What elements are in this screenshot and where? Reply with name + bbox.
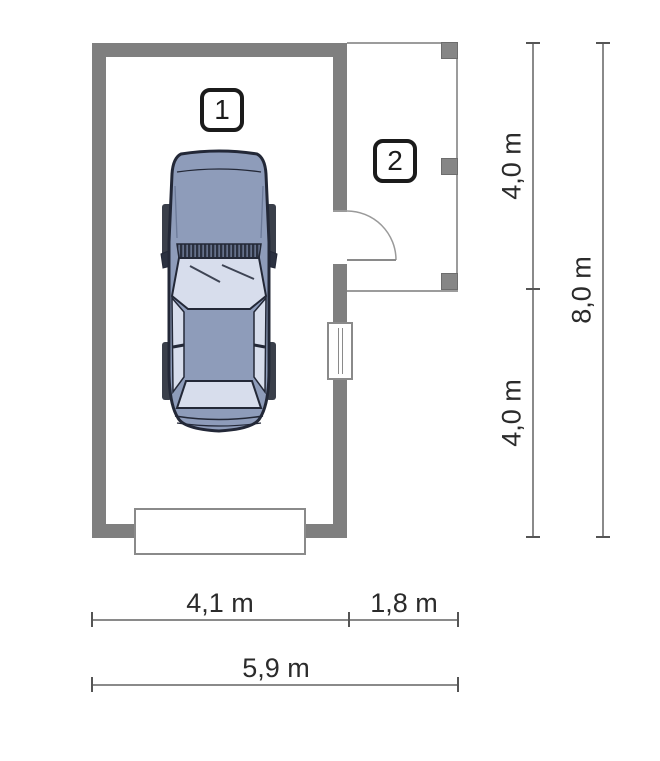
wall-right-upper (333, 43, 347, 210)
room-label-2: 2 (373, 139, 417, 183)
room-label-1: 1 (200, 88, 244, 132)
cowl-vent (177, 244, 261, 258)
wall-top (92, 43, 347, 57)
wall-right-lower (333, 380, 347, 538)
garage-door (134, 508, 306, 555)
dim-label-total-depth: 8,0 m (567, 256, 598, 324)
dim-tick (596, 42, 610, 44)
dim-tick (526, 536, 540, 538)
dim-tick (596, 536, 610, 538)
dim-tick (457, 677, 459, 692)
pillar-bottom (441, 273, 458, 290)
car-top-view-icon (156, 146, 282, 438)
dim-tick (91, 677, 93, 692)
dim-label-garage-width: 4,1 m (186, 588, 254, 619)
floor-plan-canvas: 1 2 (0, 0, 660, 761)
rear-window (177, 381, 261, 408)
dim-tick (91, 612, 93, 627)
pillar-middle (441, 158, 458, 175)
dim-label-depth-lower: 4,0 m (497, 379, 528, 447)
window-symbol (327, 322, 353, 380)
dim-tick (526, 288, 540, 290)
dim-line-right-inner (532, 43, 534, 538)
dim-label-depth-upper: 4,0 m (497, 132, 528, 200)
windshield (172, 258, 266, 309)
window-pane (338, 328, 343, 374)
wall-left (92, 43, 106, 538)
door-swing-icon (345, 206, 399, 264)
room-1-number: 1 (214, 94, 230, 126)
dim-tick (457, 612, 459, 627)
dim-tick (348, 612, 350, 627)
dim-line-bottom-inner (92, 619, 459, 621)
dim-tick (526, 42, 540, 44)
dim-line-bottom-total (92, 684, 459, 686)
door-swing-arc (347, 211, 396, 260)
wall-right-middle (333, 264, 347, 322)
room-2-number: 2 (387, 145, 403, 177)
dim-label-porch-width: 1,8 m (370, 588, 438, 619)
pillar-top (441, 42, 458, 59)
dim-line-right-total (602, 43, 604, 538)
dim-label-total-width: 5,9 m (242, 653, 310, 684)
